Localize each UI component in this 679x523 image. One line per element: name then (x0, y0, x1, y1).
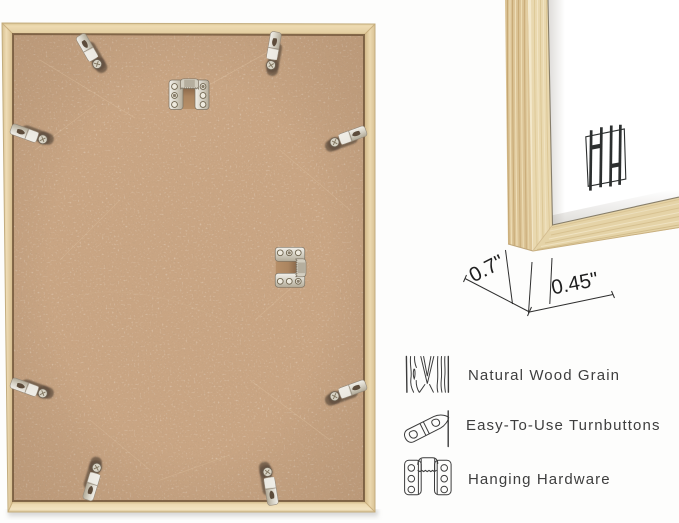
svg-text:0.45": 0.45" (549, 268, 600, 300)
